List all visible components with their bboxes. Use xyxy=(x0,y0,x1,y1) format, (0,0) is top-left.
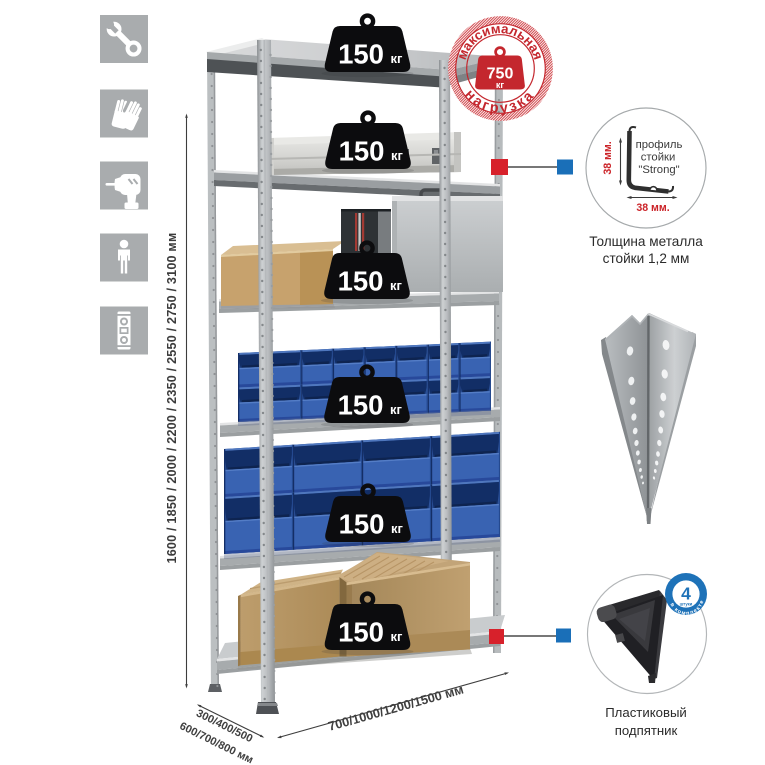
svg-text:стойки 1,2 мм: стойки 1,2 мм xyxy=(603,251,690,266)
svg-text:4: 4 xyxy=(681,584,691,604)
svg-text:штуки: штуки xyxy=(680,602,693,607)
svg-text:38 мм.: 38 мм. xyxy=(636,202,669,214)
svg-text:подпятник: подпятник xyxy=(615,723,678,738)
svg-text:1600 / 1850 / 2000 / 2200 / 23: 1600 / 1850 / 2000 / 2200 / 2350 / 2550 … xyxy=(165,233,179,564)
svg-text:Пластиковый: Пластиковый xyxy=(605,705,687,720)
svg-text:кг: кг xyxy=(496,80,505,90)
svg-text:38 мм.: 38 мм. xyxy=(602,141,614,174)
svg-text:"Strong": "Strong" xyxy=(638,164,679,176)
svg-text:профиль: профиль xyxy=(636,139,683,151)
svg-text:стойки: стойки xyxy=(641,152,676,164)
svg-text:Толщина металла: Толщина металла xyxy=(589,234,703,249)
